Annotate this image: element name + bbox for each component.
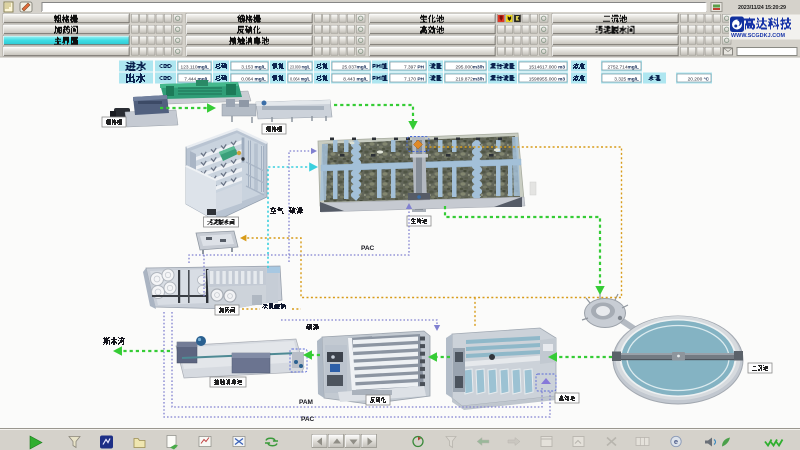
svg-text:20.200 °C: 20.200 °C [688,76,710,82]
svg-text:295.000m3/h: 295.000m3/h [455,64,484,70]
svg-text:2023/11/24 15:20:29: 2023/11/24 15:20:29 [738,5,786,11]
svg-text:1598955.000 m3: 1598955.000 m3 [529,76,566,82]
svg-text:219.872m3/h: 219.872m3/h [455,76,484,82]
svg-text:PAC: PAC [361,245,375,252]
svg-text:1514617.000 m3: 1514617.000 m3 [529,64,566,70]
svg-text:e: e [674,437,678,446]
svg-text:0.064 mg/L: 0.064 mg/L [290,76,310,82]
svg-text:0.064 mg/L: 0.064 mg/L [241,76,266,82]
svg-text:23.000 mg/L: 23.000 mg/L [290,64,310,70]
svg-text:7.397 PH: 7.397 PH [404,64,425,70]
svg-text:2752.714mg/L: 2752.714mg/L [608,64,640,70]
svg-text:3.325 mg/L: 3.325 mg/L [614,76,639,82]
svg-text:WWW.SCGDKJ.COM: WWW.SCGDKJ.COM [731,33,786,39]
svg-text:3.153 mg/L: 3.153 mg/L [241,64,266,70]
svg-text:8.443 mg/L: 8.443 mg/L [343,76,368,82]
svg-text:123.110mg/L: 123.110mg/L [181,64,210,70]
svg-text:PAM: PAM [299,399,313,406]
svg-text:7.170 PH: 7.170 PH [404,76,425,82]
svg-text:25.037mg/L: 25.037mg/L [342,64,368,70]
svg-text:PAC: PAC [301,416,315,423]
